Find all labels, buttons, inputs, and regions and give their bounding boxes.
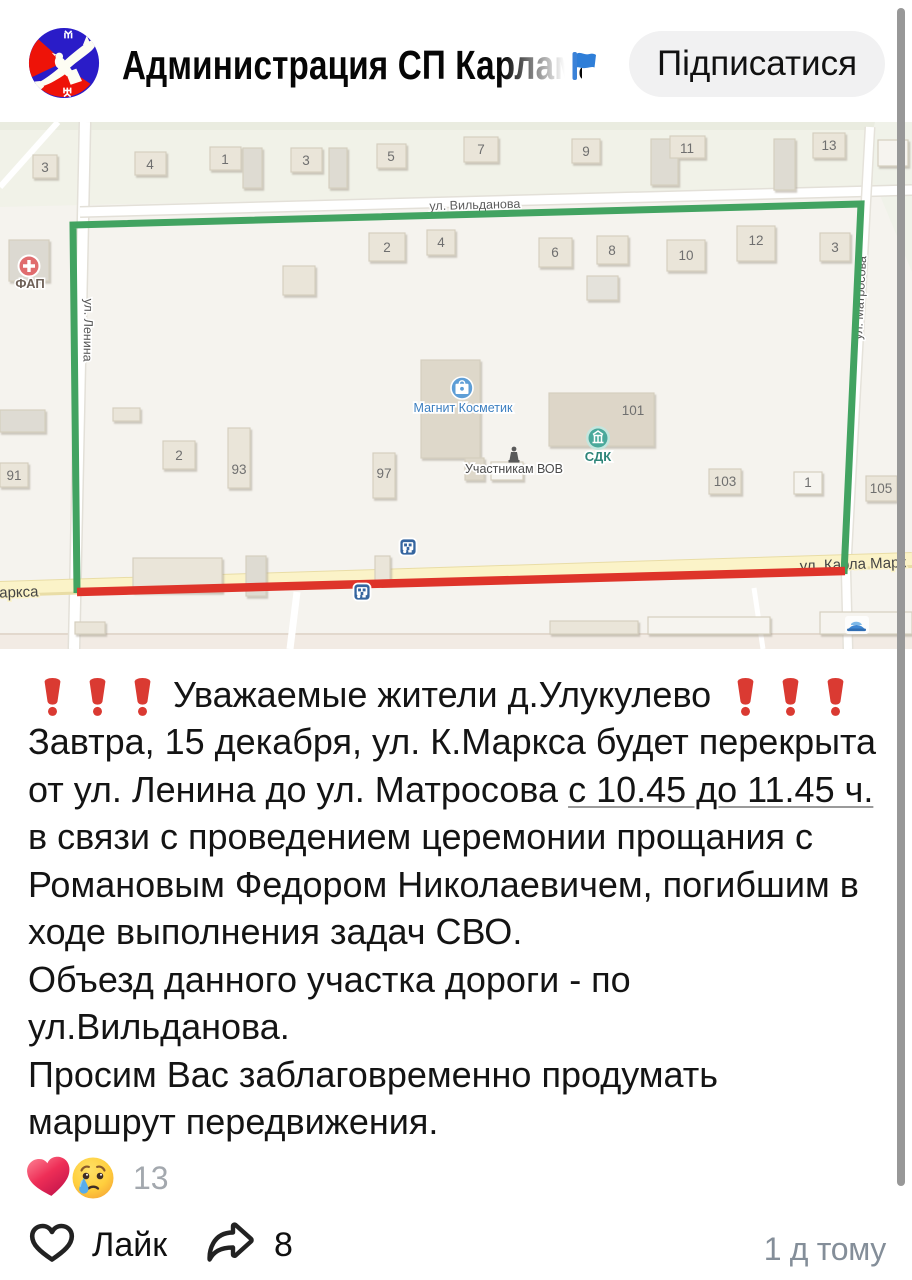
svg-text:101: 101	[622, 403, 645, 418]
svg-text:3: 3	[41, 160, 49, 175]
svg-text:ФАП: ФАП	[15, 276, 44, 291]
svg-text:7: 7	[477, 142, 485, 157]
svg-text:6: 6	[551, 245, 559, 260]
svg-text:4: 4	[437, 235, 445, 250]
svg-text:СДК: СДК	[585, 449, 611, 464]
svg-text:93: 93	[231, 462, 246, 477]
svg-text:ул. Ленина: ул. Ленина	[80, 298, 95, 361]
svg-text:10: 10	[678, 248, 693, 263]
svg-text:13: 13	[821, 138, 836, 153]
svg-text:97: 97	[376, 466, 391, 481]
svg-text:11: 11	[680, 141, 694, 156]
svg-text:Магнит Косметик: Магнит Косметик	[414, 401, 513, 415]
svg-text:9: 9	[582, 144, 590, 159]
svg-text:8: 8	[608, 243, 616, 258]
svg-text:2: 2	[383, 240, 391, 255]
svg-text:Участникам ВОВ: Участникам ВОВ	[465, 462, 563, 476]
svg-text:1: 1	[804, 475, 812, 490]
svg-text:3: 3	[831, 240, 839, 255]
svg-text:12: 12	[748, 233, 763, 248]
svg-text:3: 3	[302, 153, 310, 168]
svg-text:1: 1	[221, 152, 229, 167]
svg-text:103: 103	[714, 474, 737, 489]
svg-text:4: 4	[146, 157, 154, 172]
svg-text:5: 5	[387, 149, 395, 164]
svg-text:91: 91	[6, 468, 21, 483]
svg-text:105: 105	[870, 481, 893, 496]
svg-text:аркса: аркса	[0, 583, 39, 601]
svg-text:2: 2	[175, 448, 183, 463]
